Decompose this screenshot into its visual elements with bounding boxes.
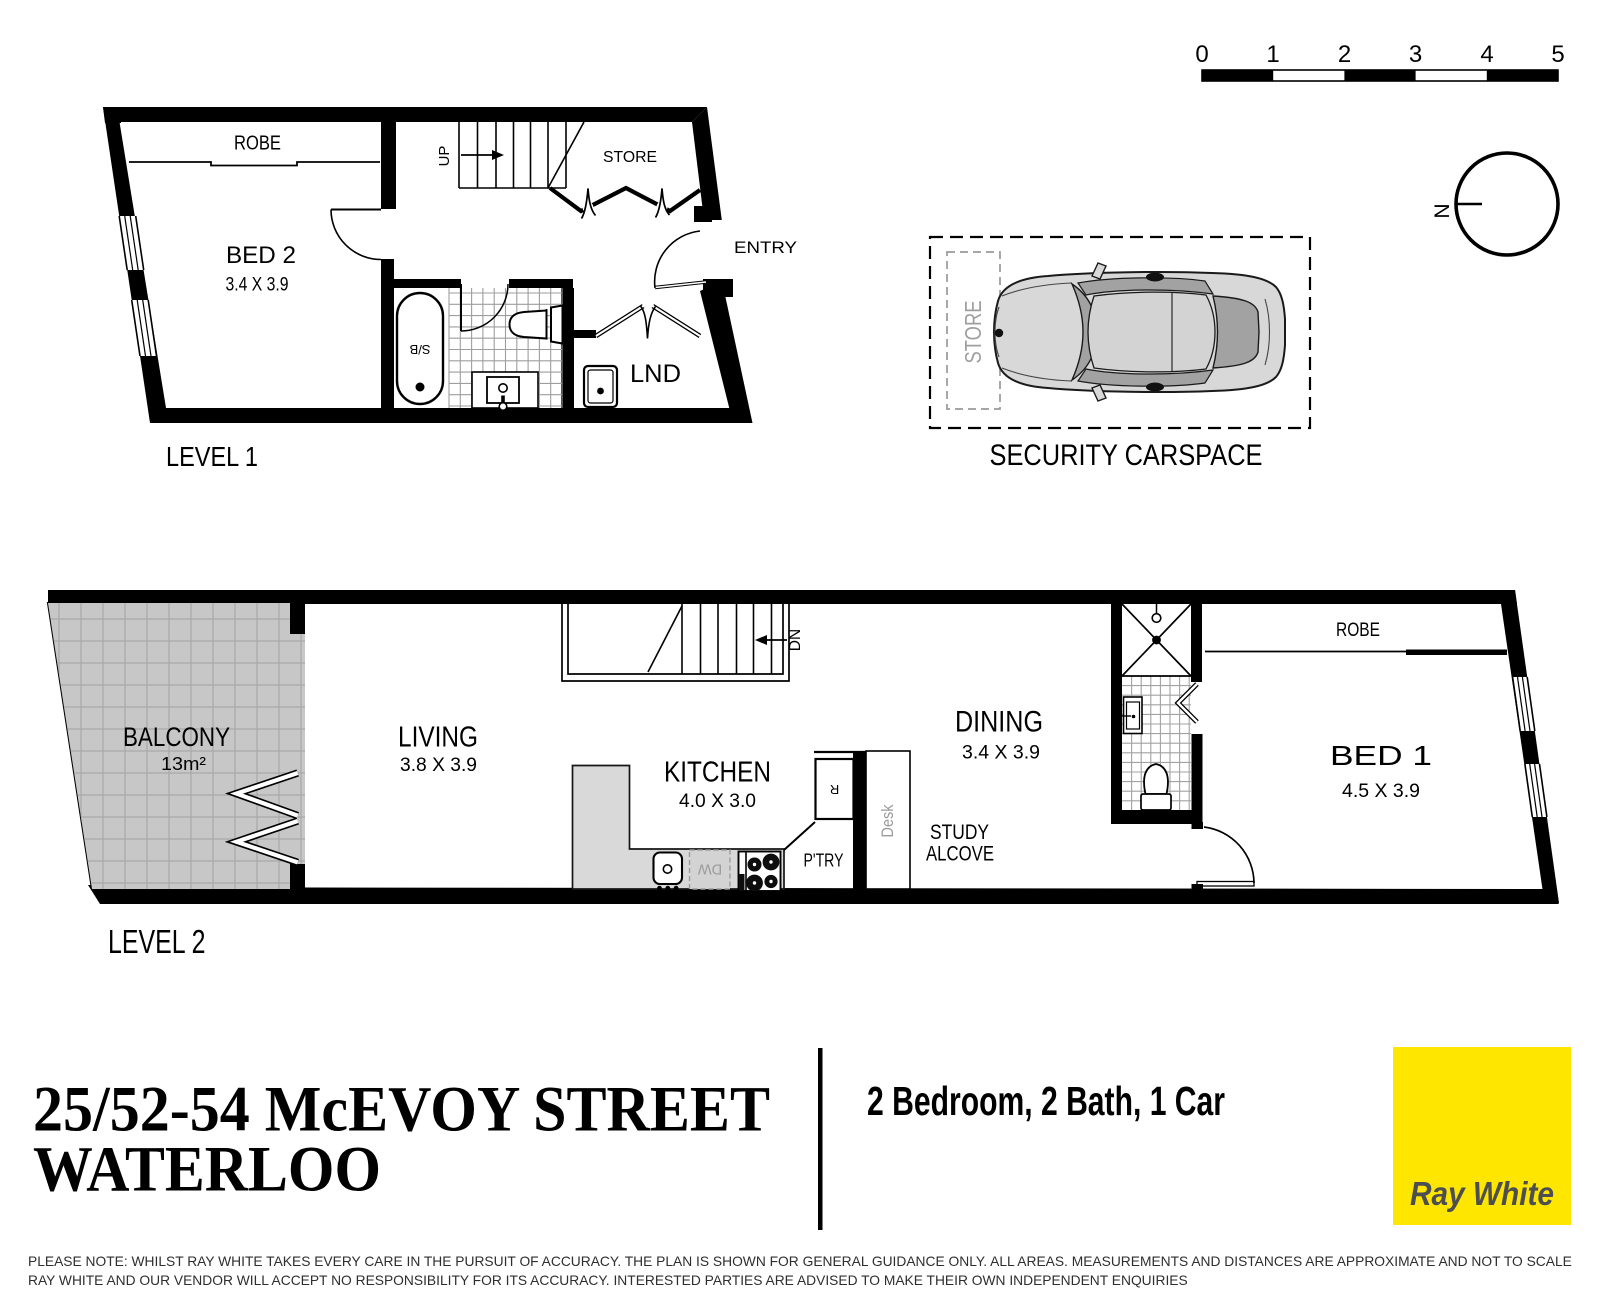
svg-text:UP: UP: [436, 146, 453, 167]
svg-text:3.4 X 3.9: 3.4 X 3.9: [962, 742, 1040, 764]
svg-text:PLEASE NOTE: WHILST RAY WHITE: PLEASE NOTE: WHILST RAY WHITE TAKES EVER…: [28, 1254, 1572, 1269]
svg-text:DINING: DINING: [955, 706, 1043, 739]
svg-text:P'TRY: P'TRY: [804, 850, 844, 871]
svg-text:1: 1: [1266, 41, 1279, 68]
svg-text:ROBE: ROBE: [234, 133, 281, 155]
svg-text:S/B: S/B: [410, 342, 431, 357]
svg-text:N: N: [1431, 203, 1454, 218]
svg-text:LND: LND: [630, 360, 681, 388]
svg-text:13m²: 13m²: [161, 753, 206, 774]
svg-text:R: R: [830, 782, 839, 797]
svg-text:STORE: STORE: [603, 149, 657, 166]
svg-text:BED 2: BED 2: [226, 242, 296, 269]
svg-text:DN: DN: [787, 629, 804, 651]
svg-text:4.0 X 3.0: 4.0 X 3.0: [679, 790, 756, 812]
svg-text:ENTRY: ENTRY: [734, 238, 797, 257]
svg-text:BALCONY: BALCONY: [123, 722, 230, 752]
svg-text:Ray White: Ray White: [1410, 1175, 1554, 1212]
svg-text:ALCOVE: ALCOVE: [926, 842, 994, 866]
svg-text:KITCHEN: KITCHEN: [664, 757, 771, 789]
svg-text:5: 5: [1551, 41, 1564, 68]
svg-text:4.5 X 3.9: 4.5 X 3.9: [1342, 780, 1420, 802]
svg-text:3: 3: [1409, 41, 1422, 68]
svg-text:2 Bedroom, 2 Bath, 1 Car: 2 Bedroom, 2 Bath, 1 Car: [867, 1078, 1225, 1124]
svg-text:2: 2: [1338, 41, 1351, 68]
svg-text:LEVEL 2: LEVEL 2: [108, 923, 206, 960]
svg-text:STUDY: STUDY: [930, 820, 989, 844]
svg-text:BED 1: BED 1: [1330, 740, 1432, 771]
svg-text:DW: DW: [698, 861, 722, 877]
svg-text:ROBE: ROBE: [1336, 619, 1380, 641]
svg-text:STORE: STORE: [960, 301, 986, 364]
svg-text:RAY WHITE AND OUR VENDOR WILL: RAY WHITE AND OUR VENDOR WILL ACCEPT NO …: [28, 1273, 1188, 1288]
svg-text:LIVING: LIVING: [398, 722, 478, 754]
svg-text:0: 0: [1195, 41, 1208, 68]
svg-text:3.4 X 3.9: 3.4 X 3.9: [226, 274, 289, 296]
svg-text:WATERLOO: WATERLOO: [33, 1134, 381, 1206]
svg-text:Desk: Desk: [879, 804, 897, 838]
svg-text:LEVEL 1: LEVEL 1: [166, 441, 258, 472]
svg-text:3.8 X 3.9: 3.8 X 3.9: [400, 754, 477, 776]
svg-text:4: 4: [1480, 41, 1493, 68]
svg-text:SECURITY CARSPACE: SECURITY CARSPACE: [990, 439, 1263, 472]
